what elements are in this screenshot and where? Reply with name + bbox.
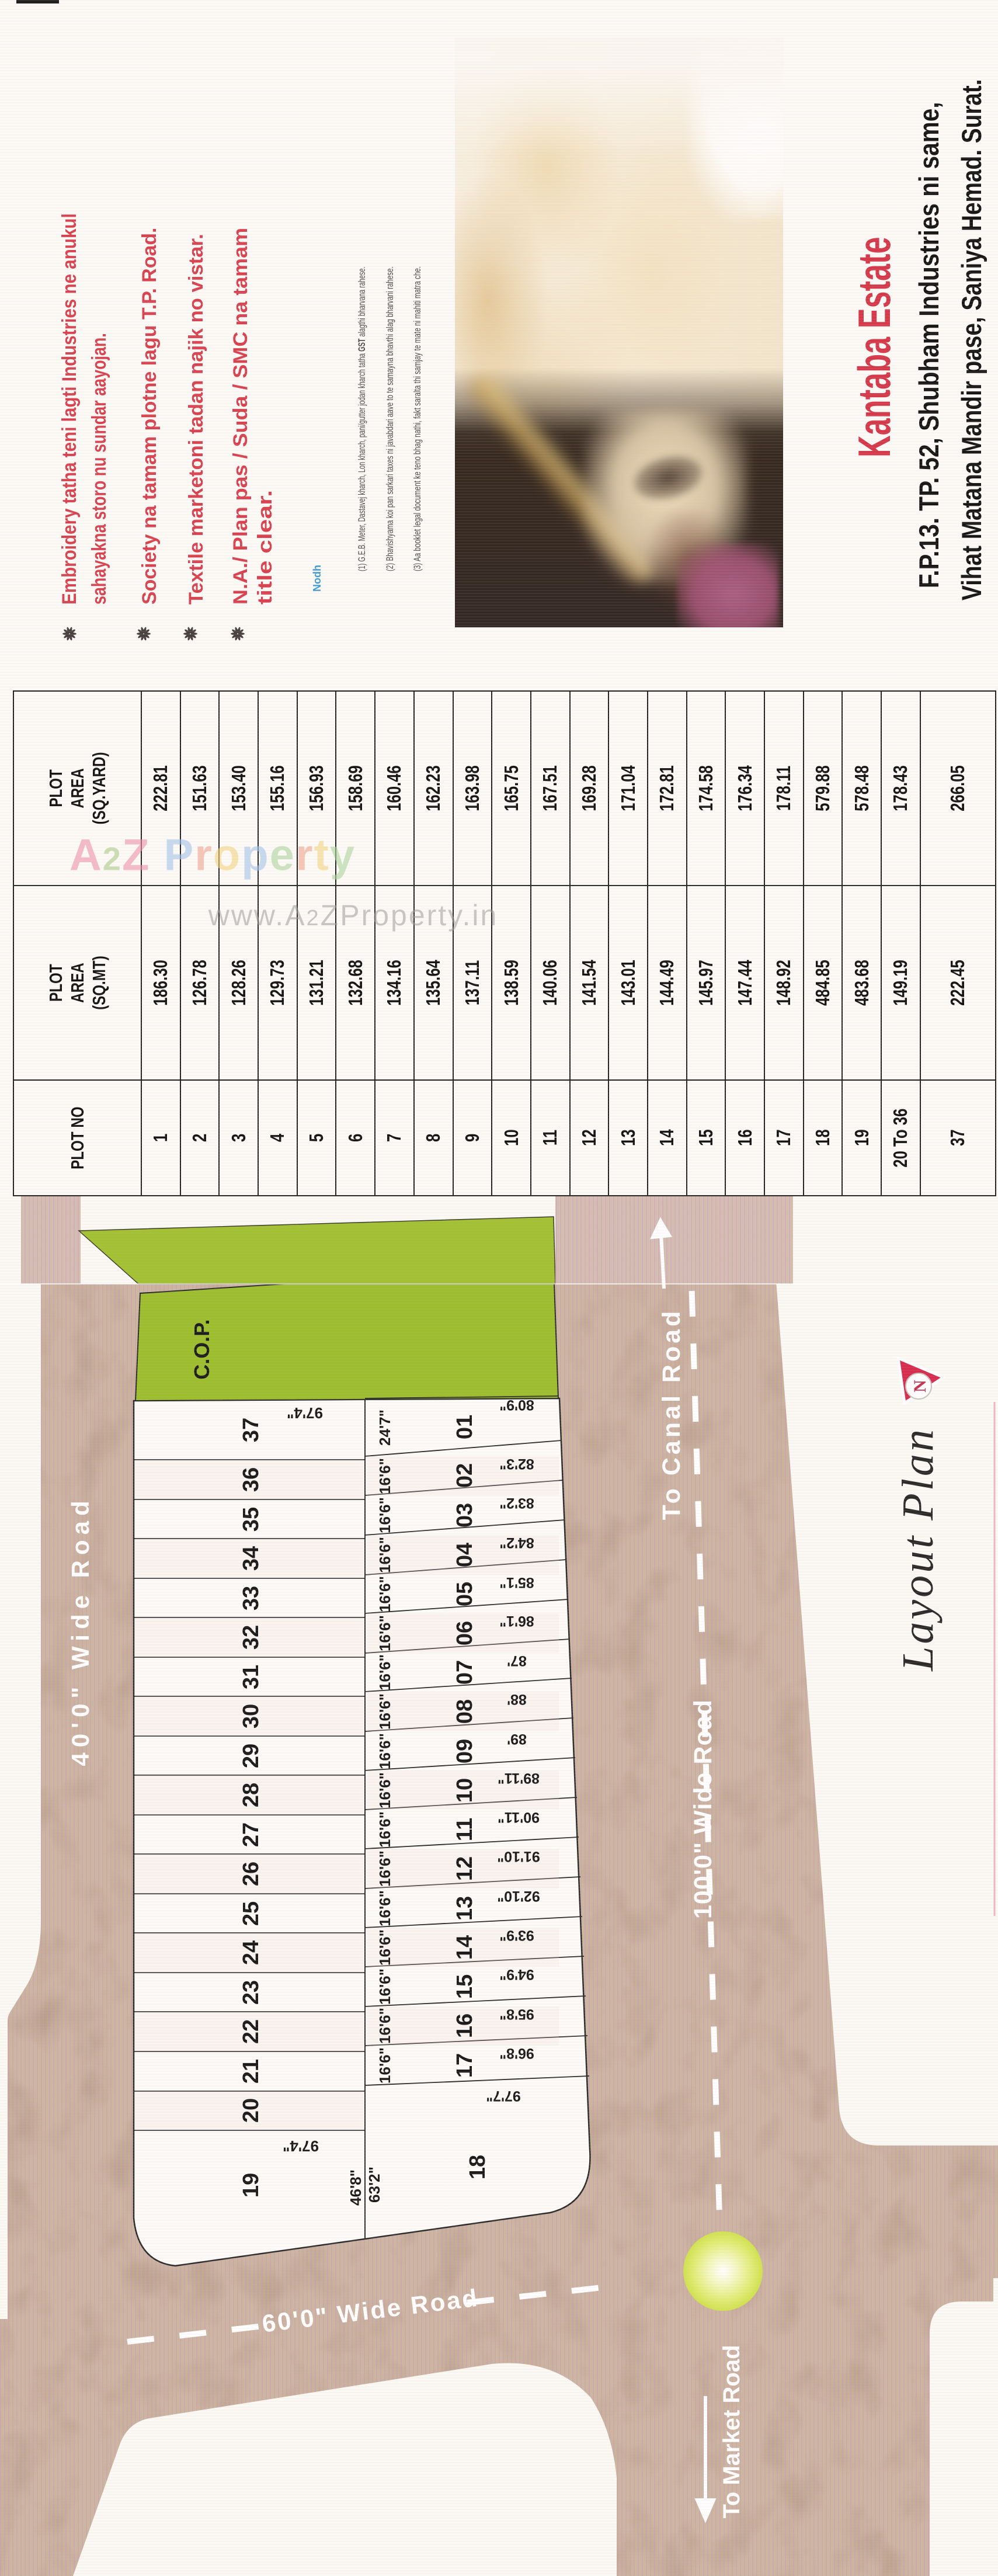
svg-text:97'4": 97'4" (287, 1404, 323, 1422)
svg-text:87': 87' (507, 1652, 527, 1669)
svg-text:05: 05 (453, 1582, 477, 1606)
svg-text:20: 20 (239, 2098, 263, 2123)
svg-text:16'6": 16'6" (376, 1615, 394, 1651)
svg-text:16: 16 (453, 2013, 477, 2038)
svg-text:16'6": 16'6" (376, 1929, 394, 1966)
svg-text:12: 12 (453, 1856, 477, 1881)
svg-text:23: 23 (239, 1980, 263, 2005)
svg-text:01: 01 (453, 1415, 477, 1439)
svg-text:40'0" Wide Road: 40'0" Wide Road (67, 1495, 94, 1766)
svg-text:16'6": 16'6" (376, 1733, 394, 1769)
svg-text:35: 35 (239, 1507, 263, 1532)
svg-text:C.O.P.: C.O.P. (190, 1319, 214, 1379)
svg-text:88': 88' (507, 1691, 527, 1707)
svg-text:91'10": 91'10" (497, 1848, 540, 1865)
svg-text:16'6": 16'6" (376, 1969, 394, 2005)
svg-text:16'6": 16'6" (376, 1772, 394, 1808)
svg-text:95'8": 95'8" (499, 2006, 534, 2022)
svg-text:11: 11 (453, 1818, 477, 1841)
svg-text:06: 06 (453, 1621, 477, 1645)
svg-text:09: 09 (453, 1739, 477, 1763)
svg-text:84'2": 84'2" (499, 1535, 534, 1551)
svg-text:29: 29 (239, 1744, 263, 1768)
svg-text:34: 34 (239, 1546, 263, 1571)
svg-text:16'6": 16'6" (376, 2047, 394, 2084)
svg-text:93'9": 93'9" (499, 1927, 534, 1943)
svg-text:28: 28 (239, 1783, 263, 1807)
svg-text:97'4": 97'4" (283, 2137, 319, 2155)
svg-text:08: 08 (453, 1699, 477, 1724)
svg-text:89'11": 89'11" (498, 1770, 540, 1786)
svg-text:25: 25 (239, 1901, 263, 1926)
svg-text:03: 03 (453, 1503, 477, 1527)
svg-text:16'6": 16'6" (376, 1693, 394, 1730)
svg-text:16'6": 16'6" (376, 1537, 394, 1573)
svg-text:16'6": 16'6" (376, 2008, 394, 2044)
svg-text:92'10": 92'10" (497, 1888, 540, 1904)
svg-text:27: 27 (239, 1822, 263, 1847)
svg-text:16'6": 16'6" (376, 1576, 394, 1612)
svg-text:04: 04 (453, 1543, 477, 1567)
svg-text:83'2": 83'2" (499, 1495, 534, 1511)
svg-text:31: 31 (239, 1665, 263, 1689)
svg-text:97'7": 97'7" (486, 2088, 521, 2104)
svg-text:22: 22 (239, 2019, 263, 2044)
svg-text:36: 36 (239, 1467, 263, 1492)
svg-text:15: 15 (453, 1974, 477, 1999)
svg-text:21: 21 (239, 2059, 263, 2084)
svg-text:18: 18 (465, 2155, 490, 2179)
svg-text:17: 17 (453, 2053, 477, 2078)
svg-text:N: N (910, 1380, 930, 1393)
svg-text:13: 13 (453, 1896, 477, 1921)
svg-text:32: 32 (239, 1625, 263, 1650)
svg-text:89': 89' (507, 1731, 527, 1747)
svg-text:82'3": 82'3" (499, 1456, 534, 1472)
svg-text:80'9": 80'9" (499, 1397, 534, 1413)
svg-text:16'6": 16'6" (376, 1654, 394, 1690)
svg-text:To Canal Road: To Canal Road (658, 1308, 686, 1520)
svg-text:10: 10 (453, 1778, 477, 1803)
svg-text:14: 14 (453, 1935, 477, 1960)
svg-text:94'9": 94'9" (499, 1966, 534, 1983)
svg-text:16'6": 16'6" (376, 1458, 394, 1494)
svg-text:Layout Plan: Layout Plan (893, 1427, 943, 1672)
svg-text:85'1": 85'1" (499, 1574, 534, 1591)
svg-text:16'6": 16'6" (376, 1497, 394, 1533)
svg-text:86'1": 86'1" (499, 1613, 534, 1629)
svg-text:19: 19 (239, 2173, 263, 2197)
svg-text:07: 07 (453, 1660, 477, 1685)
svg-text:16'6": 16'6" (376, 1811, 394, 1848)
svg-text:96'8": 96'8" (499, 2045, 534, 2061)
svg-text:30: 30 (239, 1704, 263, 1728)
svg-text:To Market Road: To Market Road (719, 2345, 745, 2518)
svg-text:02: 02 (453, 1463, 477, 1488)
svg-text:33: 33 (239, 1586, 263, 1610)
svg-text:37: 37 (239, 1418, 263, 1442)
svg-text:16'6": 16'6" (376, 1890, 394, 1926)
svg-text:46'8": 46'8" (347, 2169, 364, 2206)
svg-text:90'11": 90'11" (498, 1809, 540, 1825)
svg-text:24: 24 (239, 1940, 263, 1965)
svg-text:63'2": 63'2" (366, 2167, 383, 2203)
svg-text:16'6": 16'6" (376, 1851, 394, 1887)
svg-text:26: 26 (239, 1862, 263, 1886)
svg-text:24'7": 24'7" (376, 1409, 394, 1446)
svg-text:100'0" Wide Road: 100'0" Wide Road (689, 1699, 717, 1919)
